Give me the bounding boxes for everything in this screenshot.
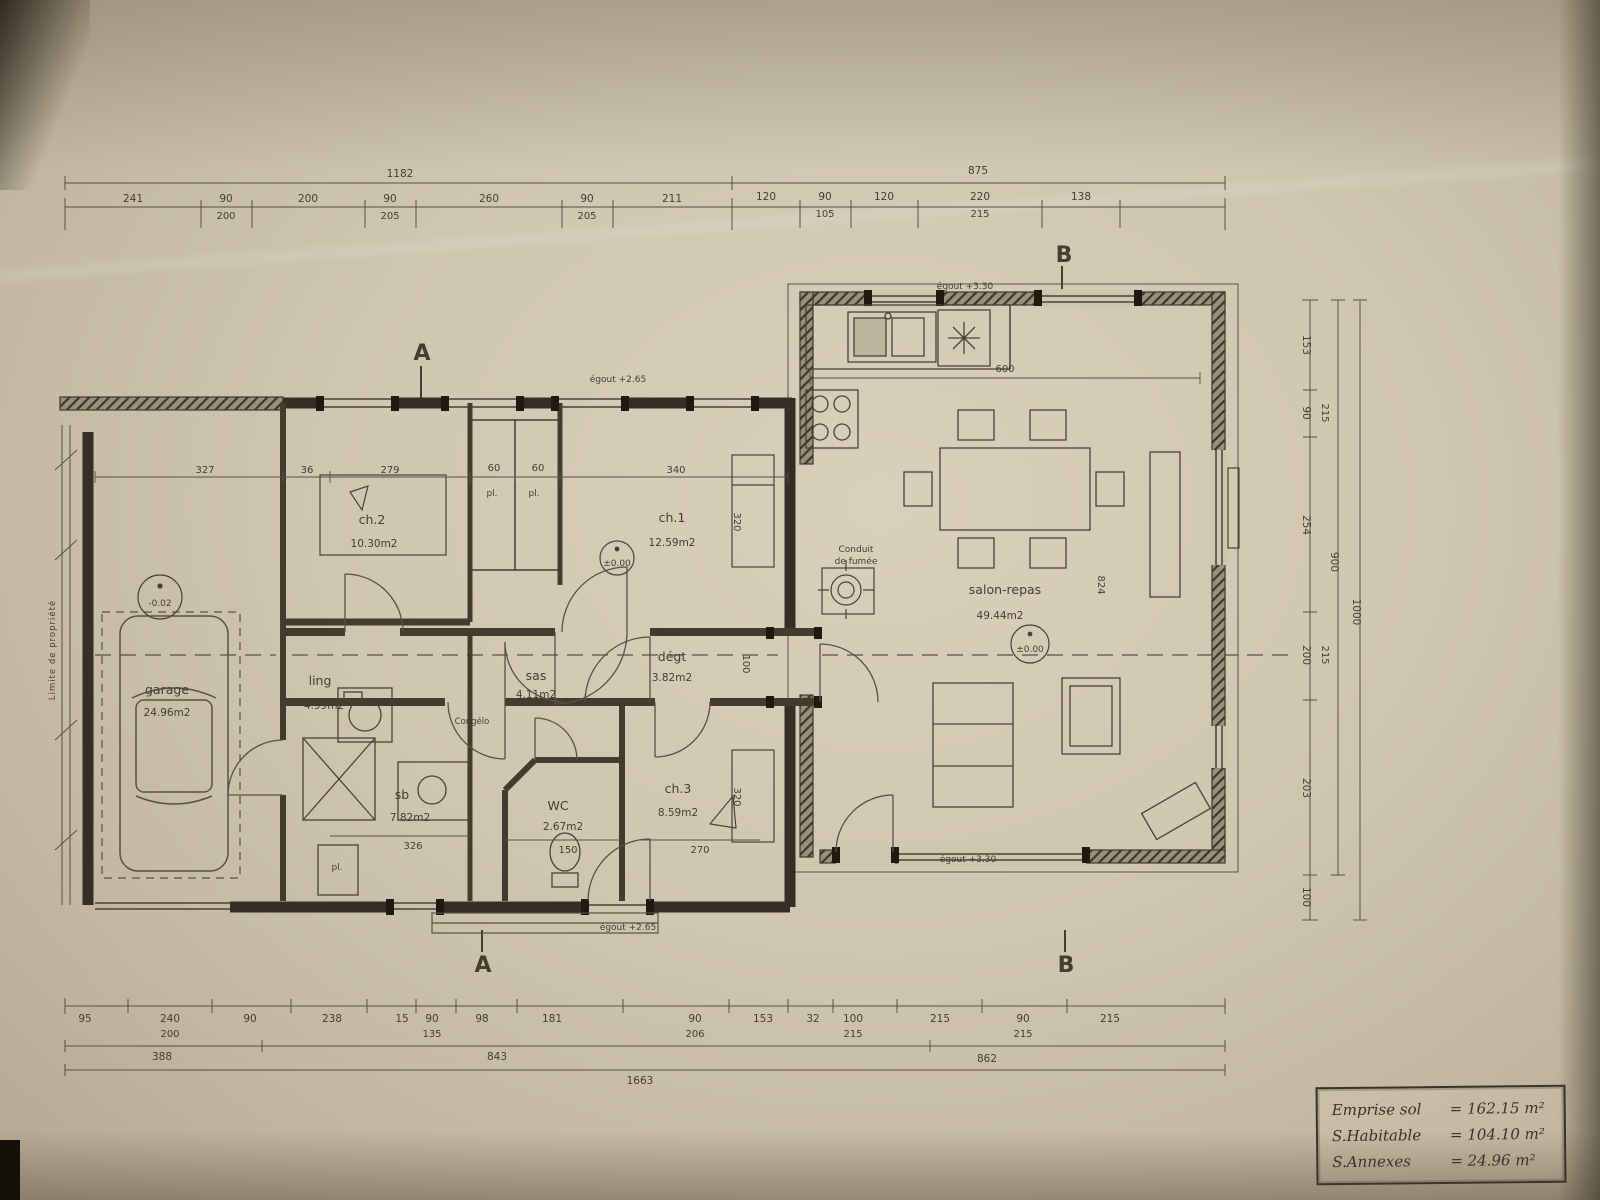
dim: 388 [152,1051,172,1063]
dim: 238 [322,1013,342,1025]
dim: 215 [970,209,989,220]
sideboard [1150,452,1180,597]
dim-right-total: 1000 [1350,599,1362,626]
placard-1: pl. [486,489,497,499]
dim: 60 [532,463,545,474]
chimney [818,560,874,619]
dimension-labels-bottom: 95 240 90 238 15 90 98 181 90 153 32 100… [78,1013,1120,1087]
room-area-sb: 7.82m2 [390,812,430,824]
conduit-label-2: de fumée [835,556,878,567]
room-area-degt: 3.82m2 [652,672,692,684]
egout-right-bottom: égout +3.30 [940,854,997,865]
dim: 200 [1300,645,1312,665]
conduit-label-1: Conduit [839,545,874,555]
dim: 320 [731,787,742,806]
interior-dim-labels: 327 36 279 60 60 340 320 320 600 824 270… [195,364,1106,856]
placard-3: pl. [331,863,342,873]
dim: 105 [815,209,834,220]
section-marks: A A B B [413,243,1074,978]
dim: 843 [487,1051,507,1063]
interior-dim-lines [95,372,1200,840]
dim: 215 [930,1013,950,1025]
legend-box: Emprise sol = 162.15 m² S.Habitable = 10… [1315,1085,1566,1186]
tv-corner [1142,783,1211,840]
dim: 90 [243,1013,256,1025]
room-area-garage: 24.96m2 [144,707,191,719]
dim: 90 [219,193,232,205]
room-label-degt: dégt [658,649,687,664]
legend-label: Emprise sol [1332,1096,1450,1123]
dim: 215 [843,1029,862,1040]
dim: 240 [160,1013,180,1025]
dim: 279 [380,465,399,476]
bathroom-fixtures [303,688,580,895]
kitchen-fixtures [806,305,1010,448]
dim: 220 [970,191,990,203]
legend-value: = 24.96 m² [1450,1147,1536,1174]
dim: 100 [1300,887,1312,907]
dim: 340 [666,465,685,476]
dim-bottom-total: 1663 [627,1075,654,1087]
bed-ch1 [732,455,774,567]
dim: 254 [1300,515,1312,535]
egout-left-bottom: égout +2.65 [600,922,656,933]
room-label-wc: WC [547,798,568,813]
dim: 270 [690,845,709,856]
dim: 260 [479,193,499,205]
level-entry: ±0.00 [603,559,631,569]
dimension-lines-bottom [65,998,1225,1076]
dim: 100 [740,654,751,673]
room-area-salon: 49.44m2 [977,610,1024,622]
dim: 120 [756,191,776,203]
room-area-ch1: 12.59m2 [649,537,696,549]
congelo-label: Congélo [455,716,490,727]
legend-row: S.Habitable = 104.10 m² [1332,1121,1550,1150]
level-markers [138,541,1049,663]
dim: 90 [383,193,396,205]
dim: 215 [1319,645,1330,664]
dim: 181 [542,1013,562,1025]
room-label-ch2: ch.2 [359,512,386,527]
dim: 60 [488,463,501,474]
walls-right-wing [800,289,1239,866]
room-label-ch1: ch.1 [659,510,686,525]
level-garage: -0.02 [148,599,171,609]
dim: 36 [301,465,314,476]
dim: 200 [298,193,318,205]
axis-dashed [95,612,1296,878]
room-area-wc: 2.67m2 [543,821,583,833]
dim-top-total-right: 875 [968,165,988,177]
dim: 98 [475,1013,488,1025]
egout-left-top: égout +2.65 [590,374,646,385]
egout-right-top: égout +3.30 [937,281,994,292]
dim: 824 [1095,575,1106,594]
dim: 326 [403,841,422,852]
dim: 138 [1071,191,1091,203]
sofa [933,678,1120,807]
level-salon: ±0.00 [1016,645,1044,655]
placard-2: pl. [528,489,539,499]
dim: 90 [580,193,593,205]
dim: 153 [1300,335,1312,355]
garden-wall-hatched [60,397,283,410]
dimension-lines-top [65,176,1225,230]
dim: 862 [977,1053,997,1065]
annotations: égout +2.65 égout +2.65 égout +3.30 égou… [331,281,996,933]
dim: 90 [1016,1013,1029,1025]
dimension-labels-right: 153 90 254 200 203 100 215 215 900 1000 [1300,335,1362,907]
dim: 90 [425,1013,438,1025]
room-label-sb: sb [395,787,410,802]
dining-table [904,410,1124,568]
room-area-sas: 4.11m2 [516,689,556,701]
dim: 215 [1319,403,1330,422]
dim: 241 [123,193,143,205]
dim: 90 [1300,406,1312,419]
dim: 32 [806,1013,819,1025]
legend-row: S.Annexes = 24.96 m² [1332,1147,1550,1176]
room-area-ch2: 10.30m2 [351,538,398,550]
dim: 205 [577,211,596,222]
dimension-labels-top: 1182 875 241 90 200 90 260 90 211 120 90… [123,165,1091,222]
room-area-ch3: 8.59m2 [658,807,698,819]
dim: 203 [1300,778,1312,798]
room-label-ch3: ch.3 [665,781,692,796]
legend-value: = 162.15 m² [1450,1095,1545,1122]
blueprint-photo: 1182 875 241 90 200 90 260 90 211 120 90… [0,0,1600,1200]
dim: 100 [843,1013,863,1025]
room-label-salon: salon-repas [969,582,1041,597]
dim: 211 [662,193,682,205]
dim: 600 [995,364,1014,375]
dim-top-total-left: 1182 [387,168,414,180]
dim: 205 [380,211,399,222]
dim: 120 [874,191,894,203]
dim: 135 [422,1029,441,1040]
dim: 90 [688,1013,701,1025]
section-b-bottom: B [1058,953,1075,978]
property-line [55,425,77,905]
section-a-bottom: A [474,953,491,978]
section-a-top: A [413,341,430,366]
dim-right-subtotal: 900 [1328,552,1340,572]
dim: 153 [753,1013,773,1025]
dim: 95 [78,1013,91,1025]
legend-value: = 104.10 m² [1450,1121,1545,1148]
dim: 320 [731,512,742,531]
room-label-ling: ling [309,673,332,688]
legend-label: S.Habitable [1332,1122,1450,1149]
dim: 215 [1100,1013,1120,1025]
dim: 215 [1013,1029,1032,1040]
dim: 327 [195,465,214,476]
dim: 200 [160,1029,179,1040]
dim: 150 [558,845,577,856]
legend-row: Emprise sol = 162.15 m² [1332,1094,1550,1123]
room-area-ling: 4.99m2 [304,700,344,712]
door-jambs [316,290,1142,915]
legend-label: S.Annexes [1332,1148,1450,1175]
property-line-label: Limite de propriété [47,600,58,700]
dim: 206 [685,1029,704,1040]
room-label-sas: sas [526,668,547,683]
section-b-top: B [1056,243,1073,268]
dim: 90 [818,191,831,203]
car [120,616,228,871]
dim: 15 [395,1013,408,1025]
dim: 200 [216,211,235,222]
room-label-garage: garage [145,682,189,697]
floor-plan: 1182 875 241 90 200 90 260 90 211 120 90… [0,0,1600,1200]
